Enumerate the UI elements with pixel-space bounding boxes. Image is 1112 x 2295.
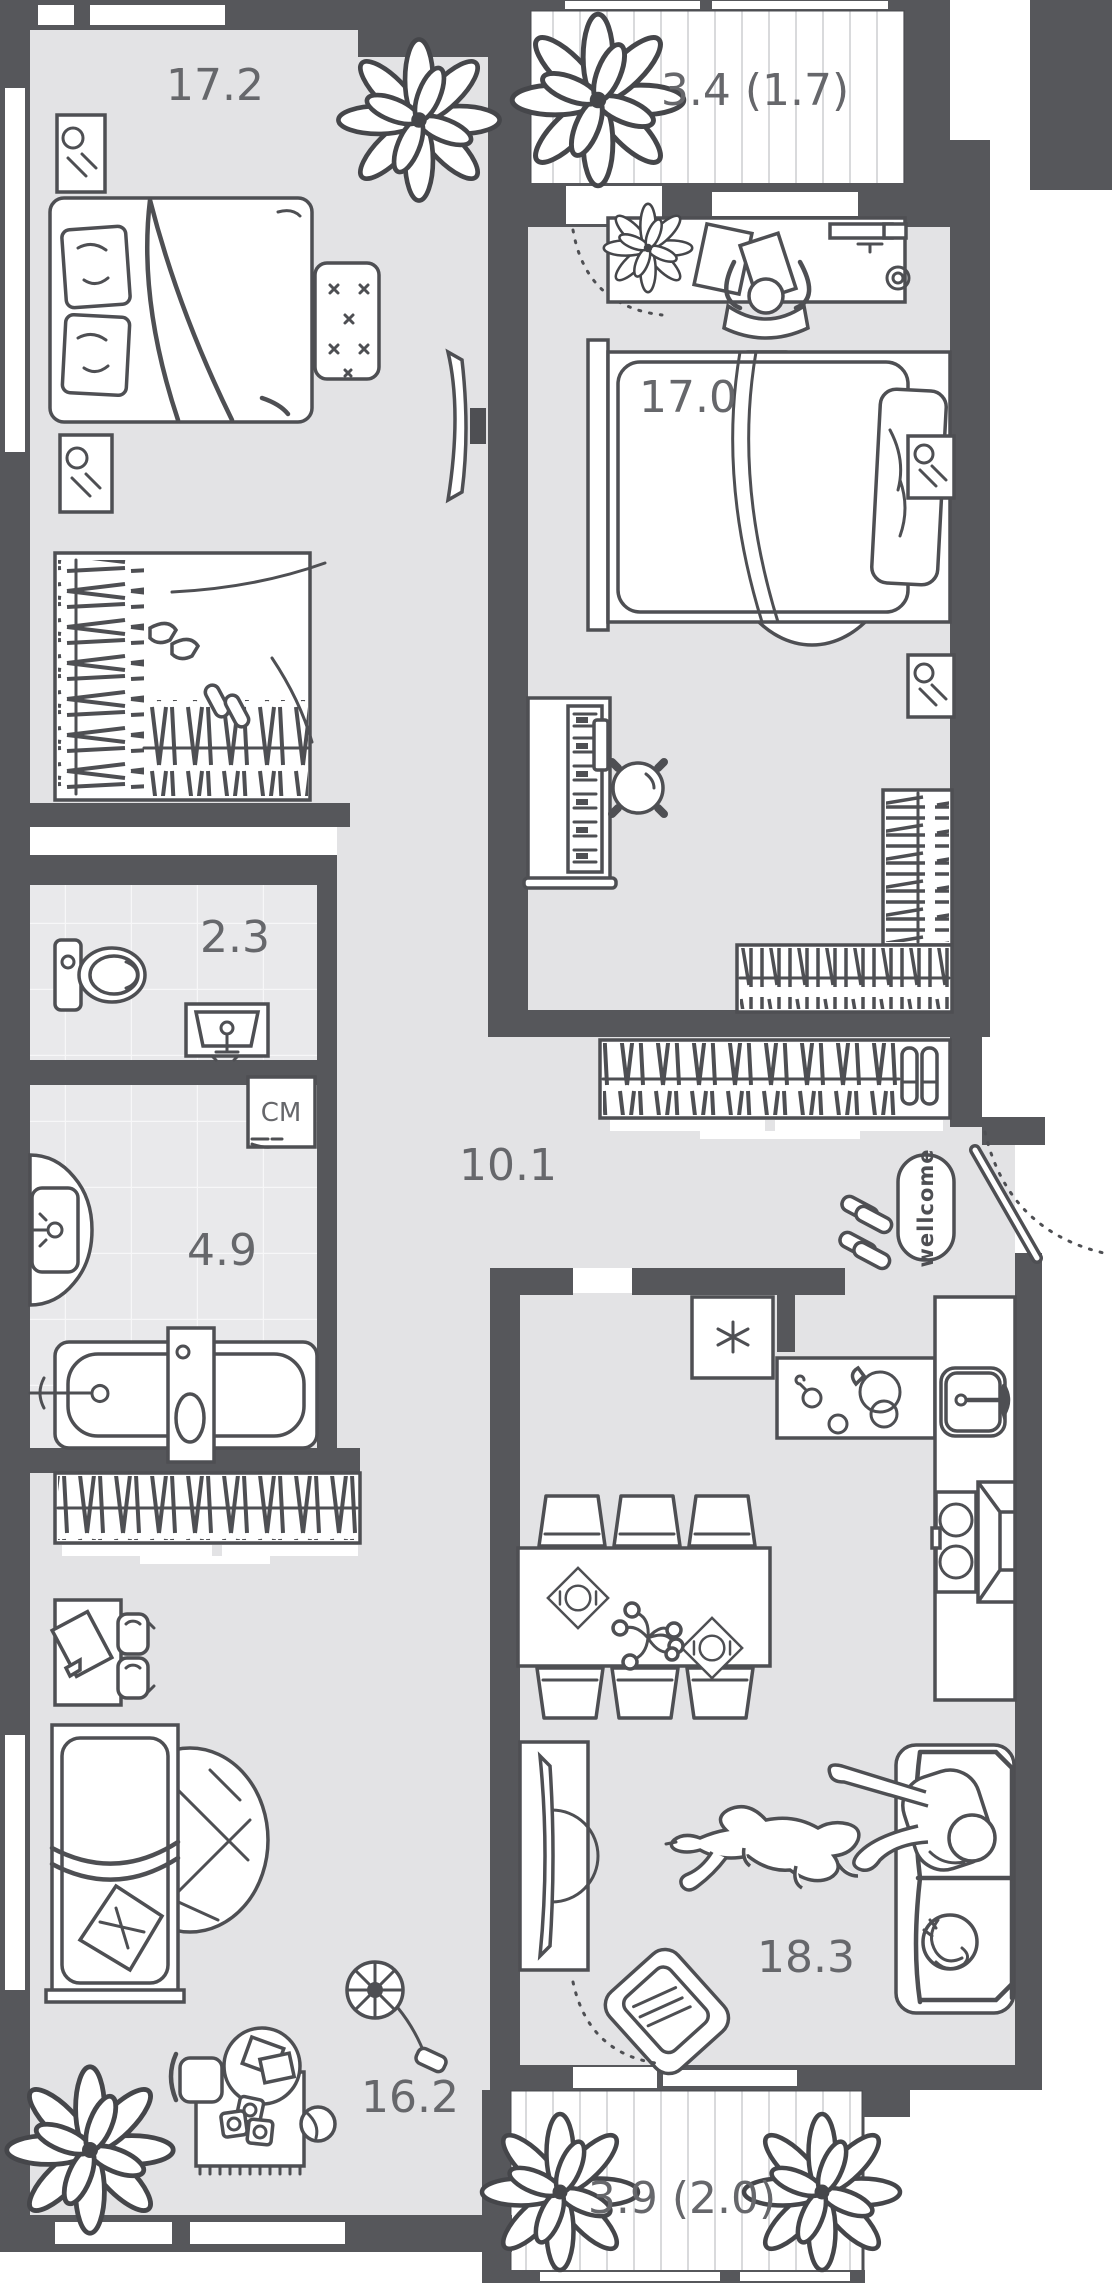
door-panel-wc-2 xyxy=(200,829,317,855)
wall-bedroom-office-divider xyxy=(488,57,528,1037)
wardrobe-slide-door-3 xyxy=(700,1131,860,1139)
window-balcony2-2 xyxy=(740,2272,850,2281)
room-label-living: 18.3 xyxy=(757,1932,855,1983)
frame-office-1 xyxy=(908,436,954,498)
window-living-bottom xyxy=(663,2070,797,2086)
wall-kitchen-stub xyxy=(777,1295,795,1352)
rack-slide-door-2 xyxy=(222,1545,358,1556)
doormat-label: wellcome xyxy=(914,1148,938,1267)
window-office-balcony xyxy=(712,192,858,216)
room-label-balcony-bottom: 3.9 (2.0) xyxy=(588,2173,776,2224)
room-label-hall: 10.1 xyxy=(459,1140,557,1191)
wall-office-bottom xyxy=(528,1010,990,1037)
window-kid-left xyxy=(5,1735,25,1990)
hall-wardrobe xyxy=(600,1040,950,1139)
kid-coat-rack xyxy=(55,1473,360,1564)
door-hall-living xyxy=(573,1270,632,1293)
kitchen-counter-right xyxy=(932,1297,1015,1700)
window-balcony2-1 xyxy=(540,2272,720,2281)
fridge xyxy=(692,1297,773,1378)
wall-closet-bottom xyxy=(30,803,350,827)
door-balcony-bottom-threshold xyxy=(573,2067,657,2088)
dining-chair-3 xyxy=(689,1496,755,1546)
plant-kid-room xyxy=(7,2067,173,2233)
doormat-wellcome: wellcome xyxy=(898,1148,954,1267)
plant-balcony-top xyxy=(512,14,684,186)
room-label-bedroom: 17.2 xyxy=(166,60,264,111)
dining-chair-5 xyxy=(612,1668,678,1718)
stove xyxy=(932,1482,1015,1602)
room-label-balcony-top: 3.4 (1.7) xyxy=(661,65,849,116)
rack-slide-door-1 xyxy=(62,1545,212,1556)
wall-hall-bottom-right xyxy=(632,1268,845,1295)
plant-desk xyxy=(604,204,692,292)
dining-set xyxy=(518,1496,770,1718)
window-bedroom-top-2 xyxy=(90,5,225,25)
tv-living xyxy=(520,1742,598,1970)
wall-wc-top xyxy=(30,855,337,885)
wall-hall-bottom-left xyxy=(490,1268,573,1295)
walk-in-closet xyxy=(55,553,325,800)
room-label-wc: 2.3 xyxy=(200,912,270,963)
wall-right-lower xyxy=(1015,1253,1042,2090)
dresser-mirror-top xyxy=(57,115,105,192)
wall-storage-right xyxy=(950,1037,982,1127)
wall-bath-right xyxy=(317,885,337,1448)
dining-chair-4 xyxy=(537,1668,603,1718)
wall-balcony2-corner xyxy=(863,2090,910,2117)
wardrobe-slide-door-2 xyxy=(775,1120,943,1131)
plant-bedroom xyxy=(338,39,499,200)
washer-label: СМ xyxy=(261,1098,302,1128)
wall-entry-stub xyxy=(982,1117,1045,1145)
kid-desk xyxy=(52,1600,154,1705)
wall-corner-block xyxy=(1030,0,1112,190)
window-balcony-top-1 xyxy=(565,1,700,9)
dining-chair-2 xyxy=(614,1496,680,1546)
room-label-office: 17.0 xyxy=(639,372,737,423)
kitchen-counter-top xyxy=(777,1358,935,1438)
piano-stool xyxy=(612,762,664,814)
double-bed xyxy=(50,198,312,422)
dining-chair-6 xyxy=(687,1668,753,1718)
bathtub xyxy=(30,1328,317,1462)
wardrobe-slide-door-1 xyxy=(610,1120,765,1131)
wall-balcony-right xyxy=(905,0,950,190)
wall-office-right xyxy=(950,140,990,1012)
window-kid-bottom-1 xyxy=(55,2222,172,2244)
frame-office-2 xyxy=(908,655,954,717)
window-bedroom-top-1 xyxy=(38,5,74,25)
wall-living-divider xyxy=(490,1295,520,2065)
floorplan-drawing: wellcome xyxy=(0,0,1112,2295)
window-bedroom-left xyxy=(5,88,25,452)
dresser-mirror-bottom xyxy=(60,435,112,512)
door-panel-wc-1 xyxy=(53,829,157,855)
floorplan-canvas: wellcome xyxy=(0,0,1112,2295)
rack-slide-door-3 xyxy=(140,1556,270,1564)
washing-machine: СМ xyxy=(248,1077,315,1147)
window-balcony-top-2 xyxy=(712,1,888,9)
kitchen-sink xyxy=(941,1368,1008,1436)
wc-sink xyxy=(186,1004,268,1060)
toy-ball xyxy=(301,2107,335,2141)
dining-chair-1 xyxy=(539,1496,605,1546)
room-label-bath: 4.9 xyxy=(187,1225,257,1276)
cat xyxy=(923,1915,977,1969)
bench-pouf xyxy=(315,263,379,379)
window-kid-bottom-2 xyxy=(190,2222,345,2244)
room-label-kid: 16.2 xyxy=(361,2072,459,2123)
